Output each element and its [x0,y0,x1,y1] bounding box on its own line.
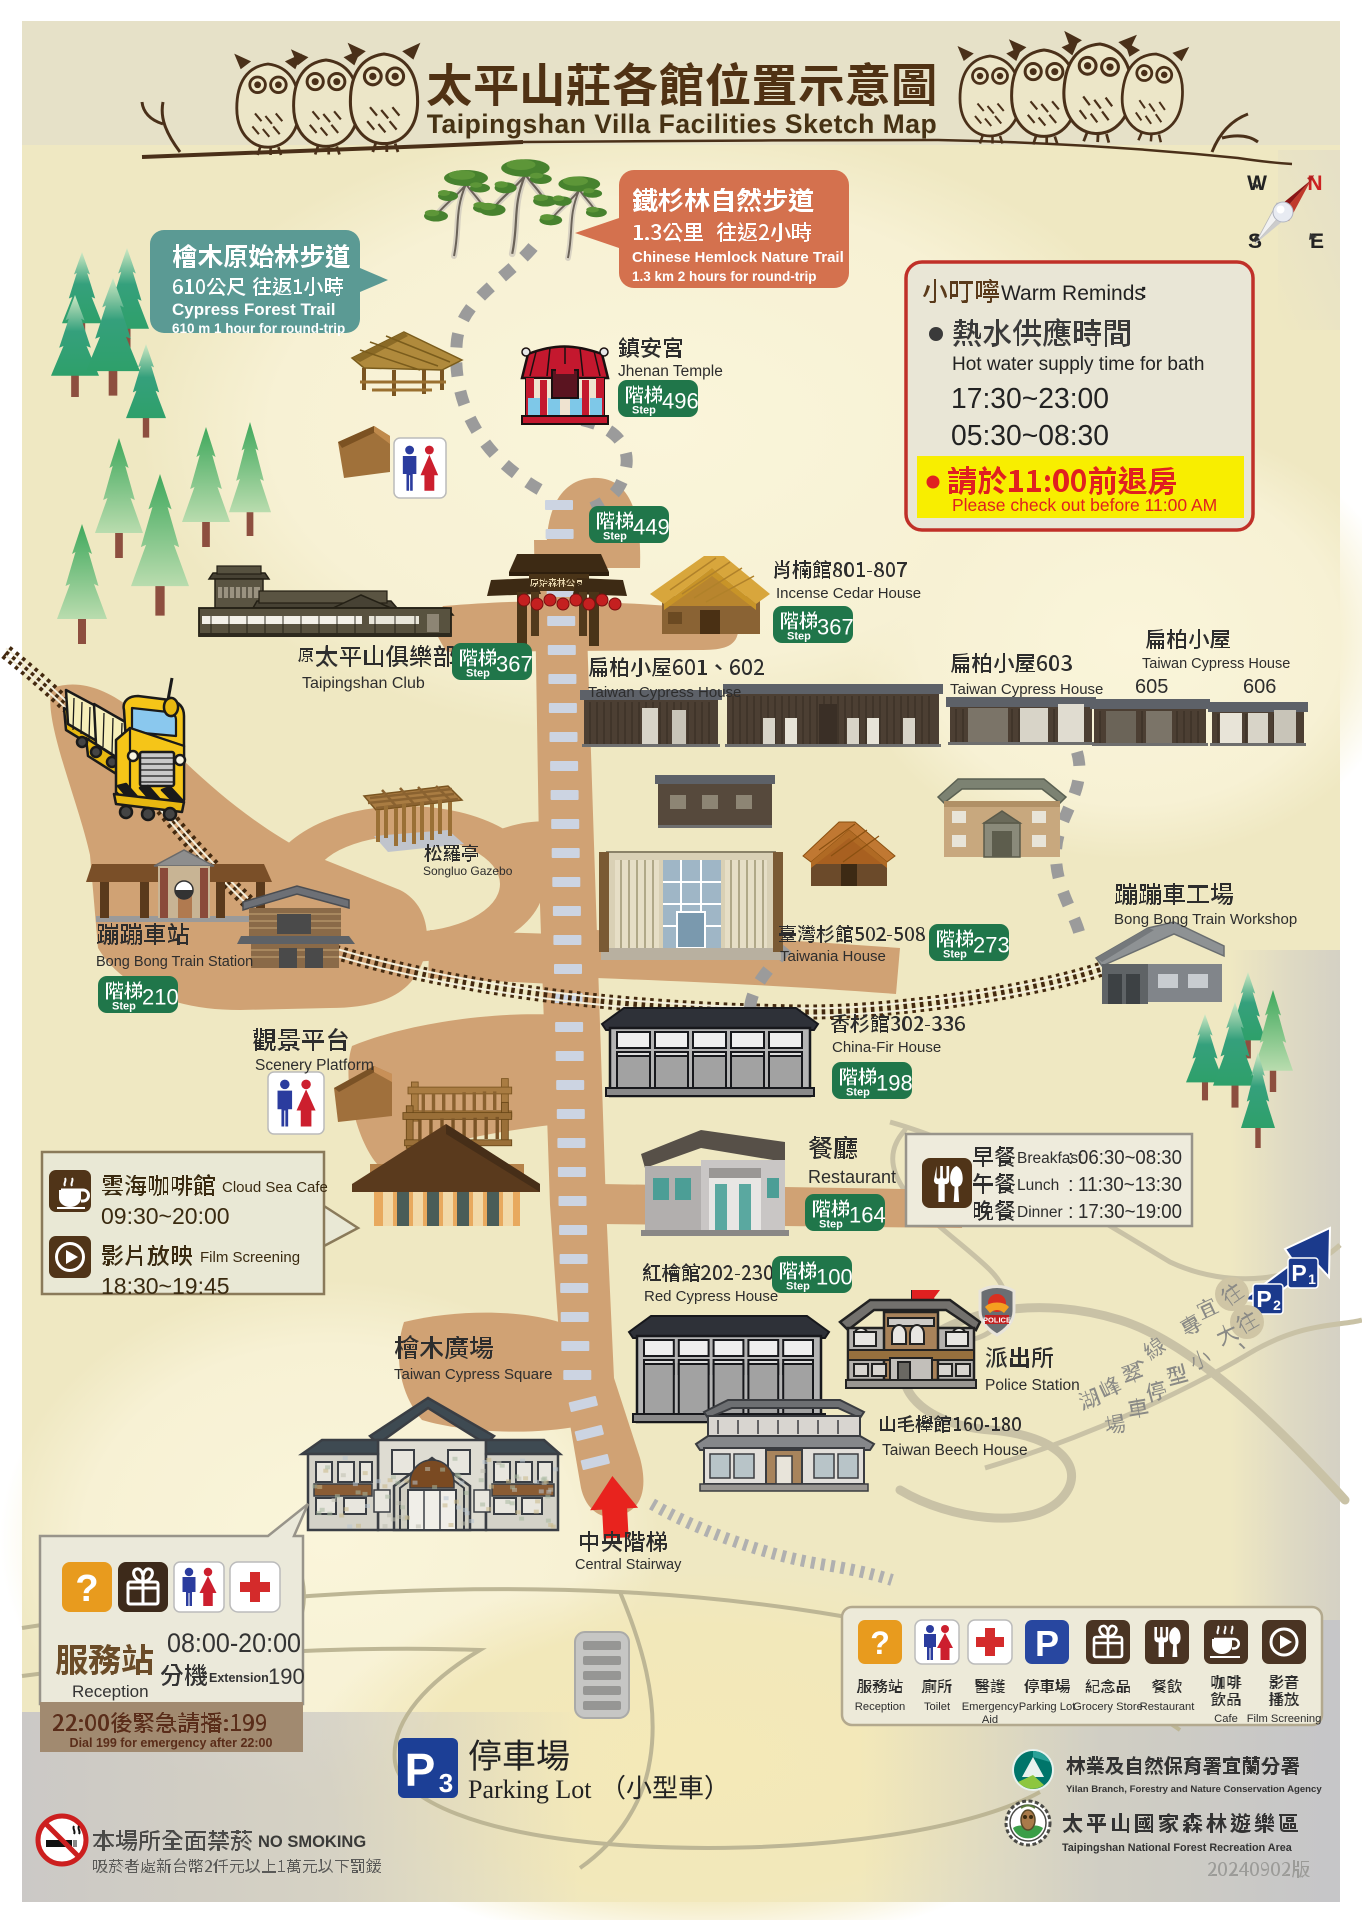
svg-text:Cypress Forest Trail: Cypress Forest Trail [172,300,335,319]
svg-text:S: S [1248,230,1262,253]
svg-text:Lunch: Lunch [1017,1177,1059,1194]
svg-text:Parking Lot: Parking Lot [468,1775,592,1804]
svg-text:Central Stairway: Central Stairway [575,1557,682,1573]
svg-text:Step: Step [943,949,967,961]
svg-text:Taiwan Beech House: Taiwan Beech House [882,1442,1028,1459]
svg-text:Reception: Reception [855,1701,905,1713]
svg-text:Cloud Sea Cafe: Cloud Sea Cafe [222,1179,328,1196]
svg-text:Toilet: Toilet [924,1701,951,1713]
svg-text:Step: Step [112,1001,136,1013]
svg-text:Taiwan Cypress Square: Taiwan Cypress Square [394,1366,552,1383]
svg-text:Bong Bong Train Station: Bong Bong Train Station [96,954,253,970]
svg-text:Taiwan Cypress House: Taiwan Cypress House [950,681,1103,698]
svg-text:05:30~08:30: 05:30~08:30 [951,420,1109,452]
svg-text:496: 496 [662,389,699,414]
svg-text:06:30~08:30: 06:30~08:30 [1078,1147,1182,1169]
svg-text:367: 367 [496,652,533,677]
svg-text:Hot water supply time for bath: Hot water supply time for bath [952,354,1204,375]
svg-text:Taipingshan National Forest Re: Taipingshan National Forest Recreation A… [1062,1842,1293,1854]
svg-text:Yilan Branch, Forestry and Nat: Yilan Branch, Forestry and Nature Conser… [1066,1784,1322,1795]
svg-text:17:30~19:00: 17:30~19:00 [1078,1201,1182,1223]
svg-text:100: 100 [816,1265,853,1290]
svg-text:Step: Step [787,631,811,643]
svg-text:Songluo Gazebo: Songluo Gazebo [423,864,513,878]
svg-text:Taiwan Cypress House: Taiwan Cypress House [588,684,741,701]
svg-text:164: 164 [849,1203,886,1228]
svg-text:449: 449 [633,515,670,540]
svg-text:Taipingshan Villa Facilities S: Taipingshan Villa Facilities Sketch Map [427,109,937,139]
svg-text:1.3 km 2 hours for round-trip: 1.3 km 2 hours for round-trip [632,269,817,284]
svg-text:Please check out before 11:00: Please check out before 11:00 AM [952,495,1217,515]
svg-text:Restaurant: Restaurant [808,1167,896,1187]
svg-text:Bong Bong Train Workshop: Bong Bong Train Workshop [1114,911,1297,928]
svg-text::: : [1068,1201,1074,1223]
svg-text:Taiwan Cypress House: Taiwan Cypress House [1142,656,1290,672]
svg-text:Restaurant: Restaurant [1140,1701,1196,1713]
svg-text:Cafe: Cafe [1214,1713,1238,1725]
svg-text:Police Station: Police Station [985,1377,1080,1394]
svg-text:11:30~13:30: 11:30~13:30 [1078,1174,1182,1196]
svg-text:Taipingshan Club: Taipingshan Club [302,675,425,692]
svg-text:Red Cypress House: Red Cypress House [644,1288,778,1305]
svg-text:Jhenan Temple: Jhenan Temple [618,363,723,380]
svg-text:P: P [1256,1286,1271,1312]
svg-text:09:30~20:00: 09:30~20:00 [101,1203,230,1229]
svg-text:08:00-20:00: 08:00-20:00 [167,1628,301,1658]
svg-text:P: P [405,1744,436,1796]
svg-text::: : [1140,278,1147,303]
svg-text:NO SMOKING: NO SMOKING [258,1833,366,1851]
svg-text:606: 606 [1243,676,1276,698]
svg-text:China-Fir House: China-Fir House [832,1039,941,1056]
svg-text:Dial 199 for emergency after 2: Dial 199 for emergency after 22:00 [70,1736,273,1750]
svg-text:18:30~19:45: 18:30~19:45 [101,1273,230,1299]
svg-text:Step: Step [632,405,656,417]
svg-text:367: 367 [817,615,854,640]
svg-text:Step: Step [786,1281,810,1293]
svg-text:Step: Step [819,1219,843,1231]
svg-text:Warm Reminds: Warm Reminds [1001,282,1145,305]
svg-text:Aid: Aid [982,1714,998,1726]
svg-text:Film Screening: Film Screening [1247,1713,1322,1725]
svg-text:Film Screening: Film Screening [200,1249,300,1266]
svg-text:210: 210 [142,985,179,1010]
svg-text:Dinner: Dinner [1017,1204,1063,1221]
svg-text:Scenery Platform: Scenery Platform [255,1057,374,1074]
svg-text:605: 605 [1135,676,1168,698]
svg-text:Parking Lot: Parking Lot [1019,1701,1076,1713]
svg-text:Emergency: Emergency [962,1701,1019,1713]
svg-text:Step: Step [466,668,490,680]
svg-text:Taiwania House: Taiwania House [780,948,886,965]
svg-text:610 m 1 hour for round-trip: 610 m 1 hour for round-trip [172,321,345,336]
svg-text:190: 190 [268,1664,305,1689]
svg-text:POLICE: POLICE [983,1316,1011,1325]
svg-text:Incense Cedar House: Incense Cedar House [776,585,921,602]
svg-text:Step: Step [603,531,627,543]
svg-text:Reception: Reception [72,1682,149,1701]
svg-text:2: 2 [1273,1297,1281,1313]
svg-text:17:30~23:00: 17:30~23:00 [951,383,1109,415]
svg-text::: : [1068,1147,1074,1169]
svg-text:N: N [1307,172,1322,195]
svg-text:198: 198 [876,1071,913,1096]
svg-text:Extension: Extension [209,1671,269,1685]
svg-text:Grocery Store: Grocery Store [1073,1701,1143,1713]
svg-text:P: P [1291,1260,1306,1286]
svg-text:273: 273 [973,933,1010,958]
svg-text::: : [1068,1174,1074,1196]
svg-text:?: ? [870,1625,890,1661]
svg-text:P: P [1035,1623,1059,1664]
svg-text:W: W [1247,172,1267,195]
svg-text:Chinese Hemlock Nature Trail: Chinese Hemlock Nature Trail [632,249,844,266]
svg-text:E: E [1310,230,1324,253]
svg-text:Step: Step [846,1087,870,1099]
svg-text:?: ? [75,1568,98,1610]
svg-text:1: 1 [1308,1271,1316,1287]
svg-text:3: 3 [439,1768,453,1798]
